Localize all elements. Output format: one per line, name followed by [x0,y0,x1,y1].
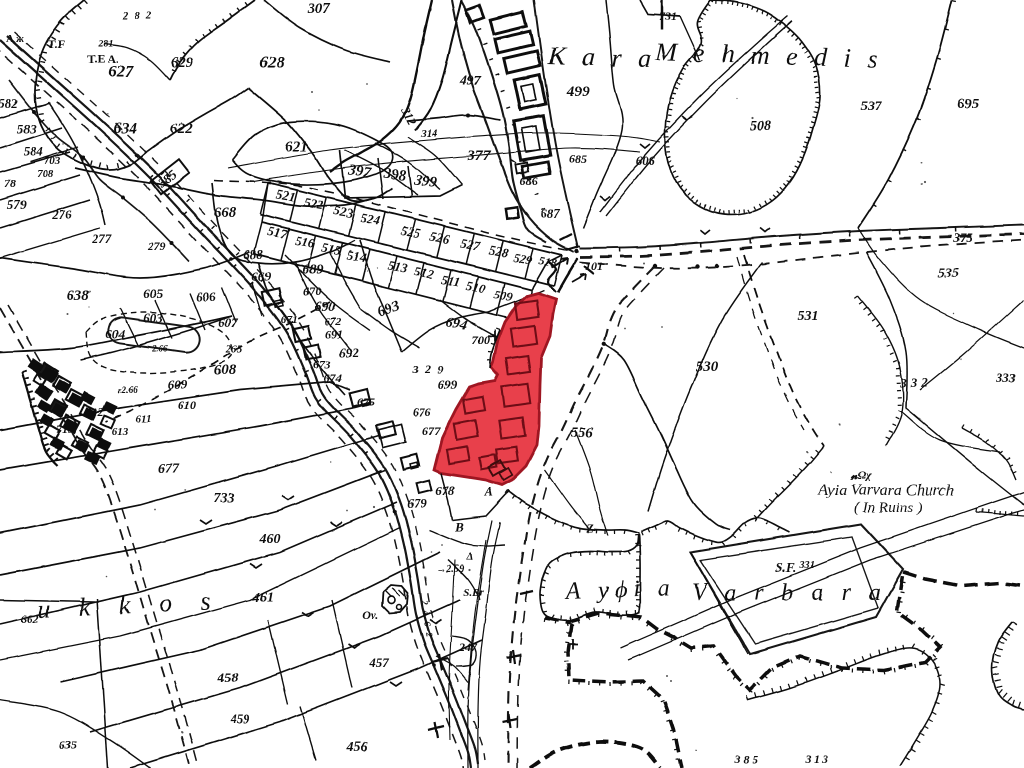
svg-text:K a r a: K a r a [547,41,657,74]
svg-text:708: 708 [37,168,54,180]
svg-text:499: 499 [566,84,590,100]
svg-text:669: 669 [251,269,271,284]
svg-text:579: 579 [7,197,27,212]
svg-text:622: 622 [170,121,193,137]
svg-text:676: 676 [413,405,431,419]
svg-text:685: 685 [569,152,587,166]
svg-text:Δ: Δ [466,551,474,563]
svg-text:398: 398 [381,165,407,184]
svg-text:689: 689 [303,263,324,278]
svg-text:T.F: T.F [47,37,64,51]
svg-text:687: 687 [540,206,560,221]
svg-text:→2.59: →2.59 [436,564,464,575]
svg-text:ε2.66: ε2.66 [118,385,138,395]
svg-text:397: 397 [346,162,372,181]
svg-text:247: 247 [458,640,478,654]
svg-text:638: 638 [67,288,90,304]
svg-text:A: A [484,484,494,499]
svg-text:265: 265 [225,343,243,355]
svg-text:S.Br: S.Br [463,587,484,599]
svg-text:101: 101 [585,259,603,273]
svg-text:678: 678 [435,483,455,498]
svg-text:459: 459 [229,711,250,726]
svg-text:399: 399 [412,172,438,191]
svg-text:457: 457 [368,655,389,670]
svg-text:668: 668 [214,205,237,221]
svg-text:613: 613 [112,426,129,438]
svg-text:277: 277 [91,231,112,246]
svg-text:582: 582 [0,96,18,111]
svg-text:282: 282 [122,10,158,22]
svg-text:634: 634 [113,120,137,137]
svg-text:531: 531 [798,309,819,324]
svg-text:556: 556 [571,425,594,441]
svg-text:679: 679 [407,496,427,511]
svg-text:𝓷Ωχ: 𝓷Ωχ [850,470,872,482]
svg-text:313: 313 [805,752,830,766]
svg-text:461: 461 [252,591,274,606]
svg-text:673: 673 [313,357,331,371]
svg-text:Z: Z [585,521,594,535]
svg-text:A yϕi a: A yϕi a [563,575,676,605]
svg-text:375: 375 [952,230,973,245]
svg-text:686: 686 [520,174,538,188]
svg-text:662: 662 [21,612,39,626]
svg-text:307: 307 [307,1,331,17]
svg-text:603: 603 [143,310,163,325]
svg-text:635: 635 [59,738,77,752]
svg-text:670: 670 [303,284,321,298]
svg-text:458: 458 [217,671,239,686]
svg-text:497: 497 [459,74,482,89]
svg-text:460: 460 [259,532,281,547]
svg-text:733: 733 [214,491,235,506]
svg-text:677: 677 [158,462,180,477]
svg-text:530: 530 [696,359,719,375]
svg-text:329: 329 [412,362,449,376]
svg-text:276: 276 [51,207,72,222]
svg-text:584: 584 [23,144,43,159]
svg-text:671: 671 [281,314,298,326]
svg-text:583: 583 [17,121,37,136]
svg-text:607: 607 [218,315,238,330]
svg-text:677: 677 [422,424,441,438]
svg-text:700: 700 [472,333,490,347]
svg-text:608: 608 [214,362,237,378]
svg-text:Ayia Varvara Church: Ayia Varvara Church [817,482,953,499]
svg-text:333: 333 [995,370,1016,385]
svg-text:( In Ruins ): ( In Ruins ) [854,500,922,516]
svg-text:731: 731 [659,9,677,23]
svg-text:604: 604 [105,326,125,341]
svg-text:674: 674 [324,371,342,385]
svg-text:628: 628 [259,53,285,72]
svg-text:385: 385 [734,752,762,766]
svg-text:699: 699 [437,377,457,392]
svg-text:621: 621 [285,139,308,155]
svg-text:695: 695 [957,96,980,112]
svg-text:2.66: 2.66 [151,344,168,354]
svg-text:535: 535 [938,266,959,281]
svg-text:629: 629 [171,55,194,71]
svg-text:691: 691 [325,327,343,341]
svg-text:606: 606 [635,153,655,168]
svg-text:712: 712 [86,405,104,419]
svg-text:281: 281 [98,39,114,50]
svg-text:609: 609 [167,377,187,392]
svg-text:611: 611 [136,413,152,425]
svg-text:78: 78 [4,176,16,190]
svg-text:377: 377 [467,148,491,164]
svg-text:V a r b a r a: V a r b a r a [692,580,887,606]
svg-text:508: 508 [750,119,771,134]
svg-text:T.E A.: T.E A. [87,52,119,66]
svg-text:688: 688 [243,247,263,262]
svg-text:692: 692 [339,345,359,360]
svg-text:690: 690 [315,300,336,315]
svg-text:B: B [454,519,464,534]
svg-text:610: 610 [178,398,196,412]
svg-text:605: 605 [143,286,163,301]
svg-text:Ov.: Ov. [362,608,379,622]
svg-text:279: 279 [147,239,166,253]
svg-text:713: 713 [56,422,74,436]
svg-text:606: 606 [196,289,216,304]
svg-text:332: 332 [899,375,932,390]
svg-text:675: 675 [357,395,375,409]
svg-text:703: 703 [44,155,61,167]
svg-text:A ж: A ж [6,33,24,45]
svg-text:537: 537 [861,99,883,114]
svg-text:314: 314 [420,128,438,140]
svg-text:456: 456 [346,740,368,755]
